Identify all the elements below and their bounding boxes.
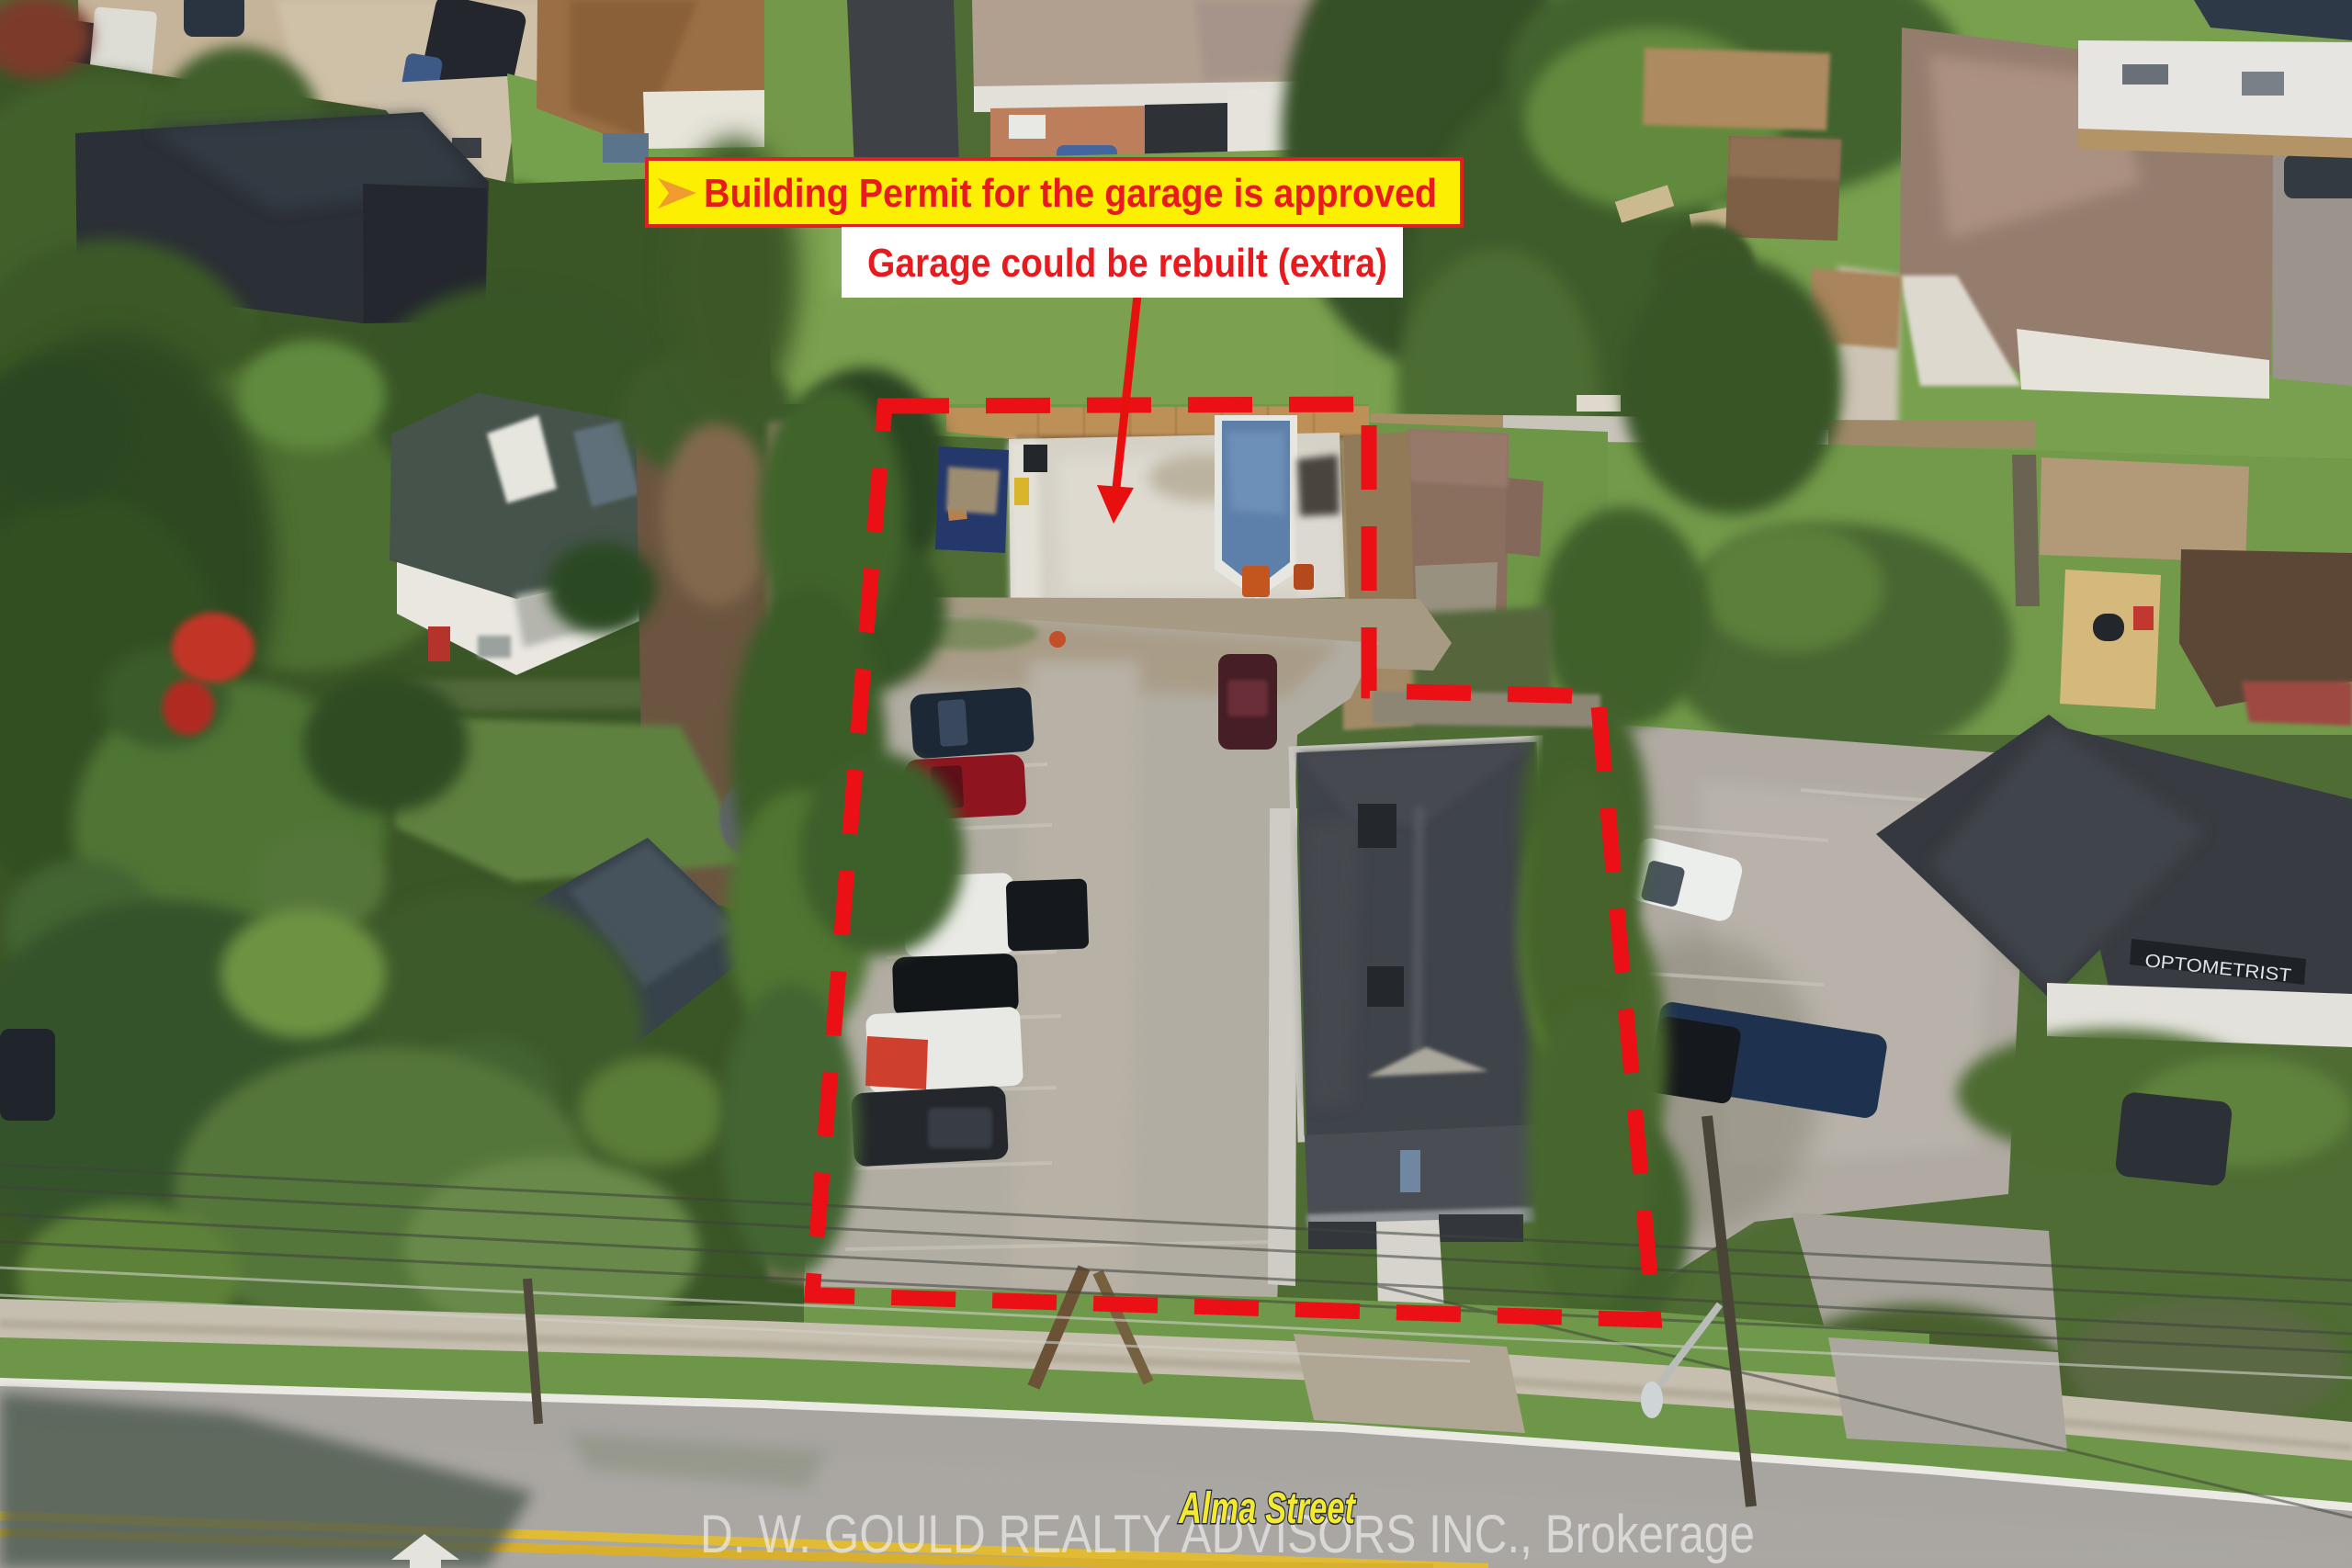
svg-text:Building Permit for the garage: Building Permit for the garage is approv… — [704, 171, 1437, 216]
svg-text:Garage could be rebuilt (extra: Garage could be rebuilt (extra) — [867, 241, 1387, 286]
svg-text:Alma Street: Alma Street — [1178, 1484, 1356, 1533]
